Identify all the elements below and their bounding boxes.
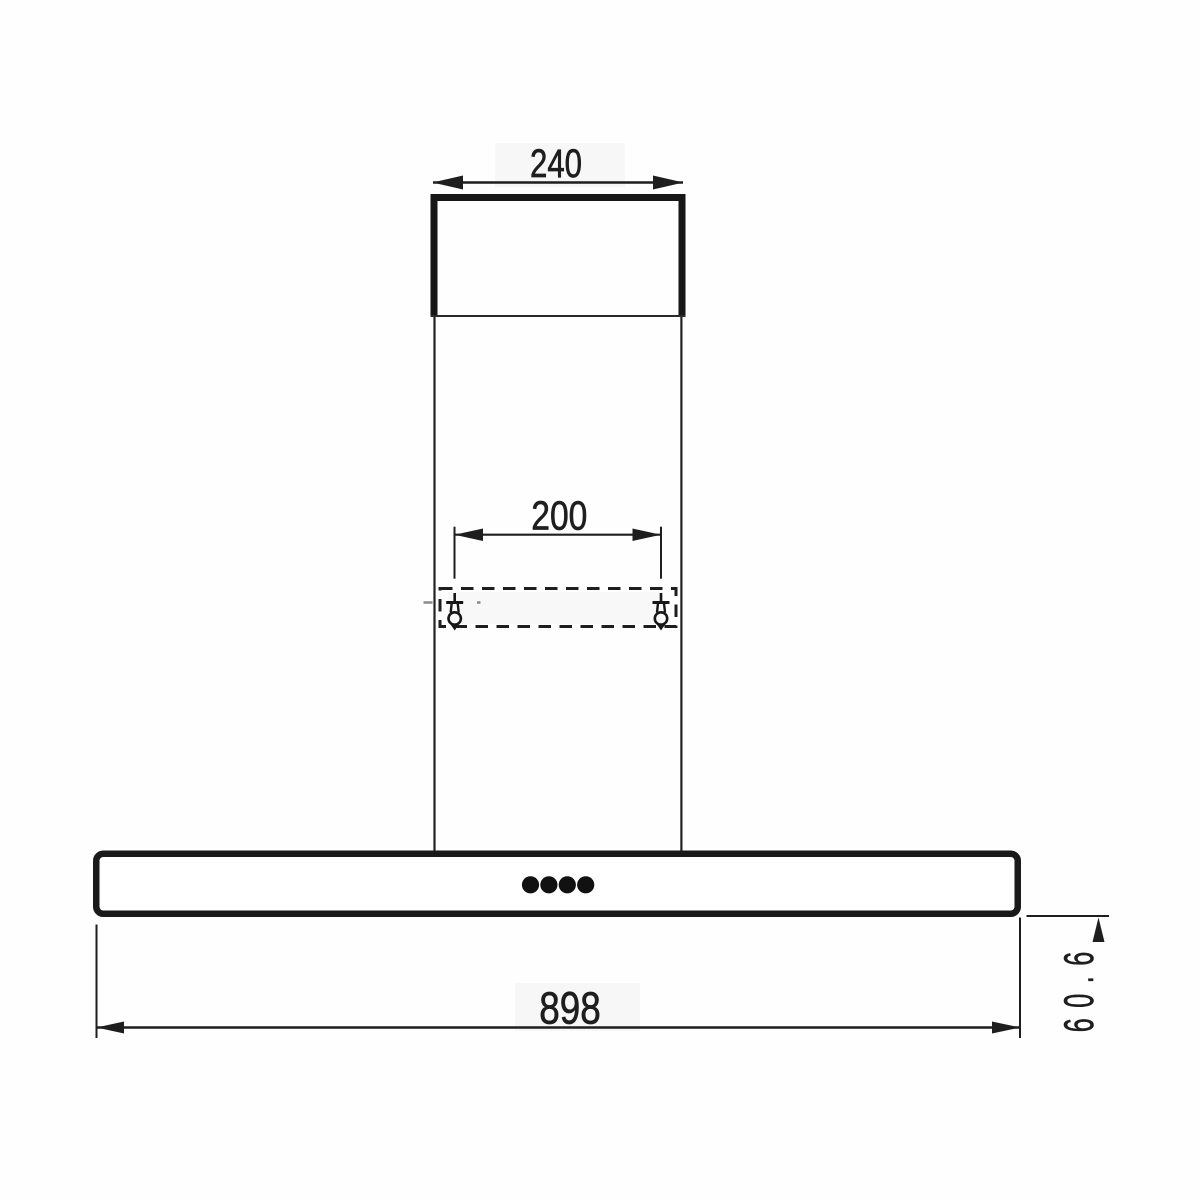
svg-text:240: 240 (530, 141, 582, 186)
svg-text:898: 898 (539, 983, 601, 1033)
svg-text:60.6: 60.6 (1057, 941, 1103, 1032)
svg-text:200: 200 (531, 492, 587, 538)
